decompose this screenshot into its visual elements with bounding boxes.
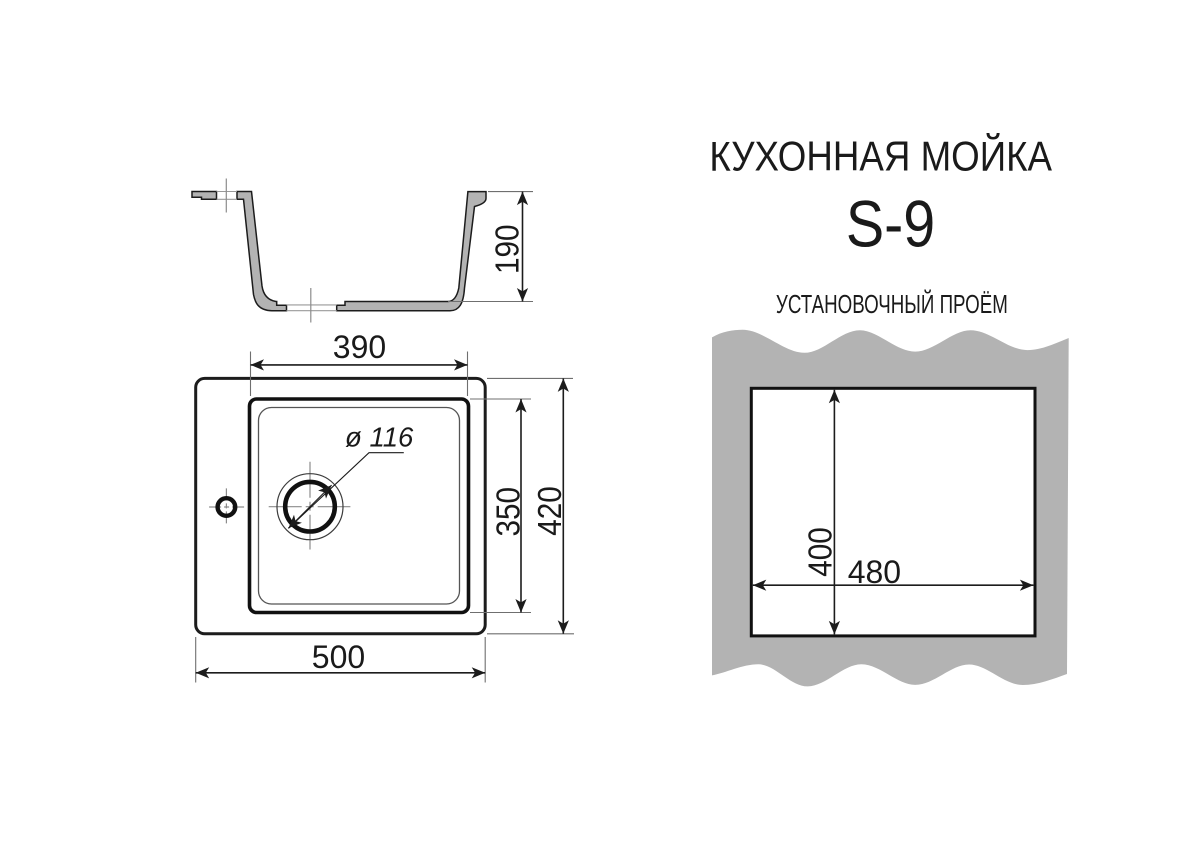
svg-text:420: 420 [532,486,569,536]
svg-text:УСТАНОВОЧНЫЙ ПРОЁМ: УСТАНОВОЧНЫЙ ПРОЁМ [776,290,1008,319]
svg-text:390: 390 [333,329,386,365]
svg-text:190: 190 [489,225,526,275]
svg-text:500: 500 [312,639,365,675]
svg-text:ø 116: ø 116 [345,421,414,452]
svg-text:480: 480 [848,554,901,590]
svg-text:КУХОННАЯ МОЙКА: КУХОННАЯ МОЙКА [709,132,1052,180]
svg-text:400: 400 [802,527,839,577]
svg-text:S-9: S-9 [846,188,935,262]
svg-text:350: 350 [490,487,527,537]
